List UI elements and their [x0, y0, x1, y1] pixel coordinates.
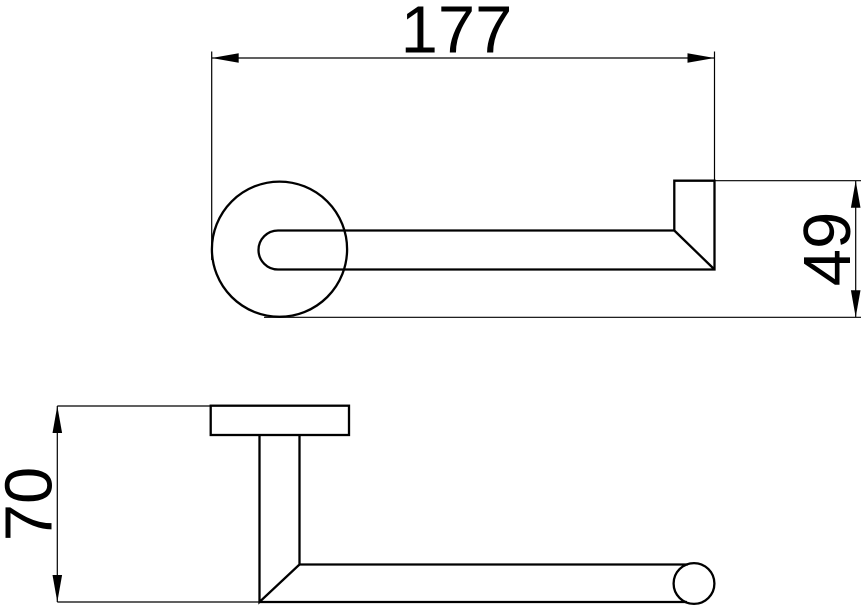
width-dimension-label: 177	[401, 0, 513, 68]
technical-drawing-page: 177 49 70	[0, 0, 864, 610]
dimension-drawing: 177 49 70	[0, 0, 864, 610]
height-dimension-label: 49	[790, 212, 864, 287]
projection-dimension-label: 70	[0, 467, 67, 542]
drawing-background	[0, 0, 864, 610]
